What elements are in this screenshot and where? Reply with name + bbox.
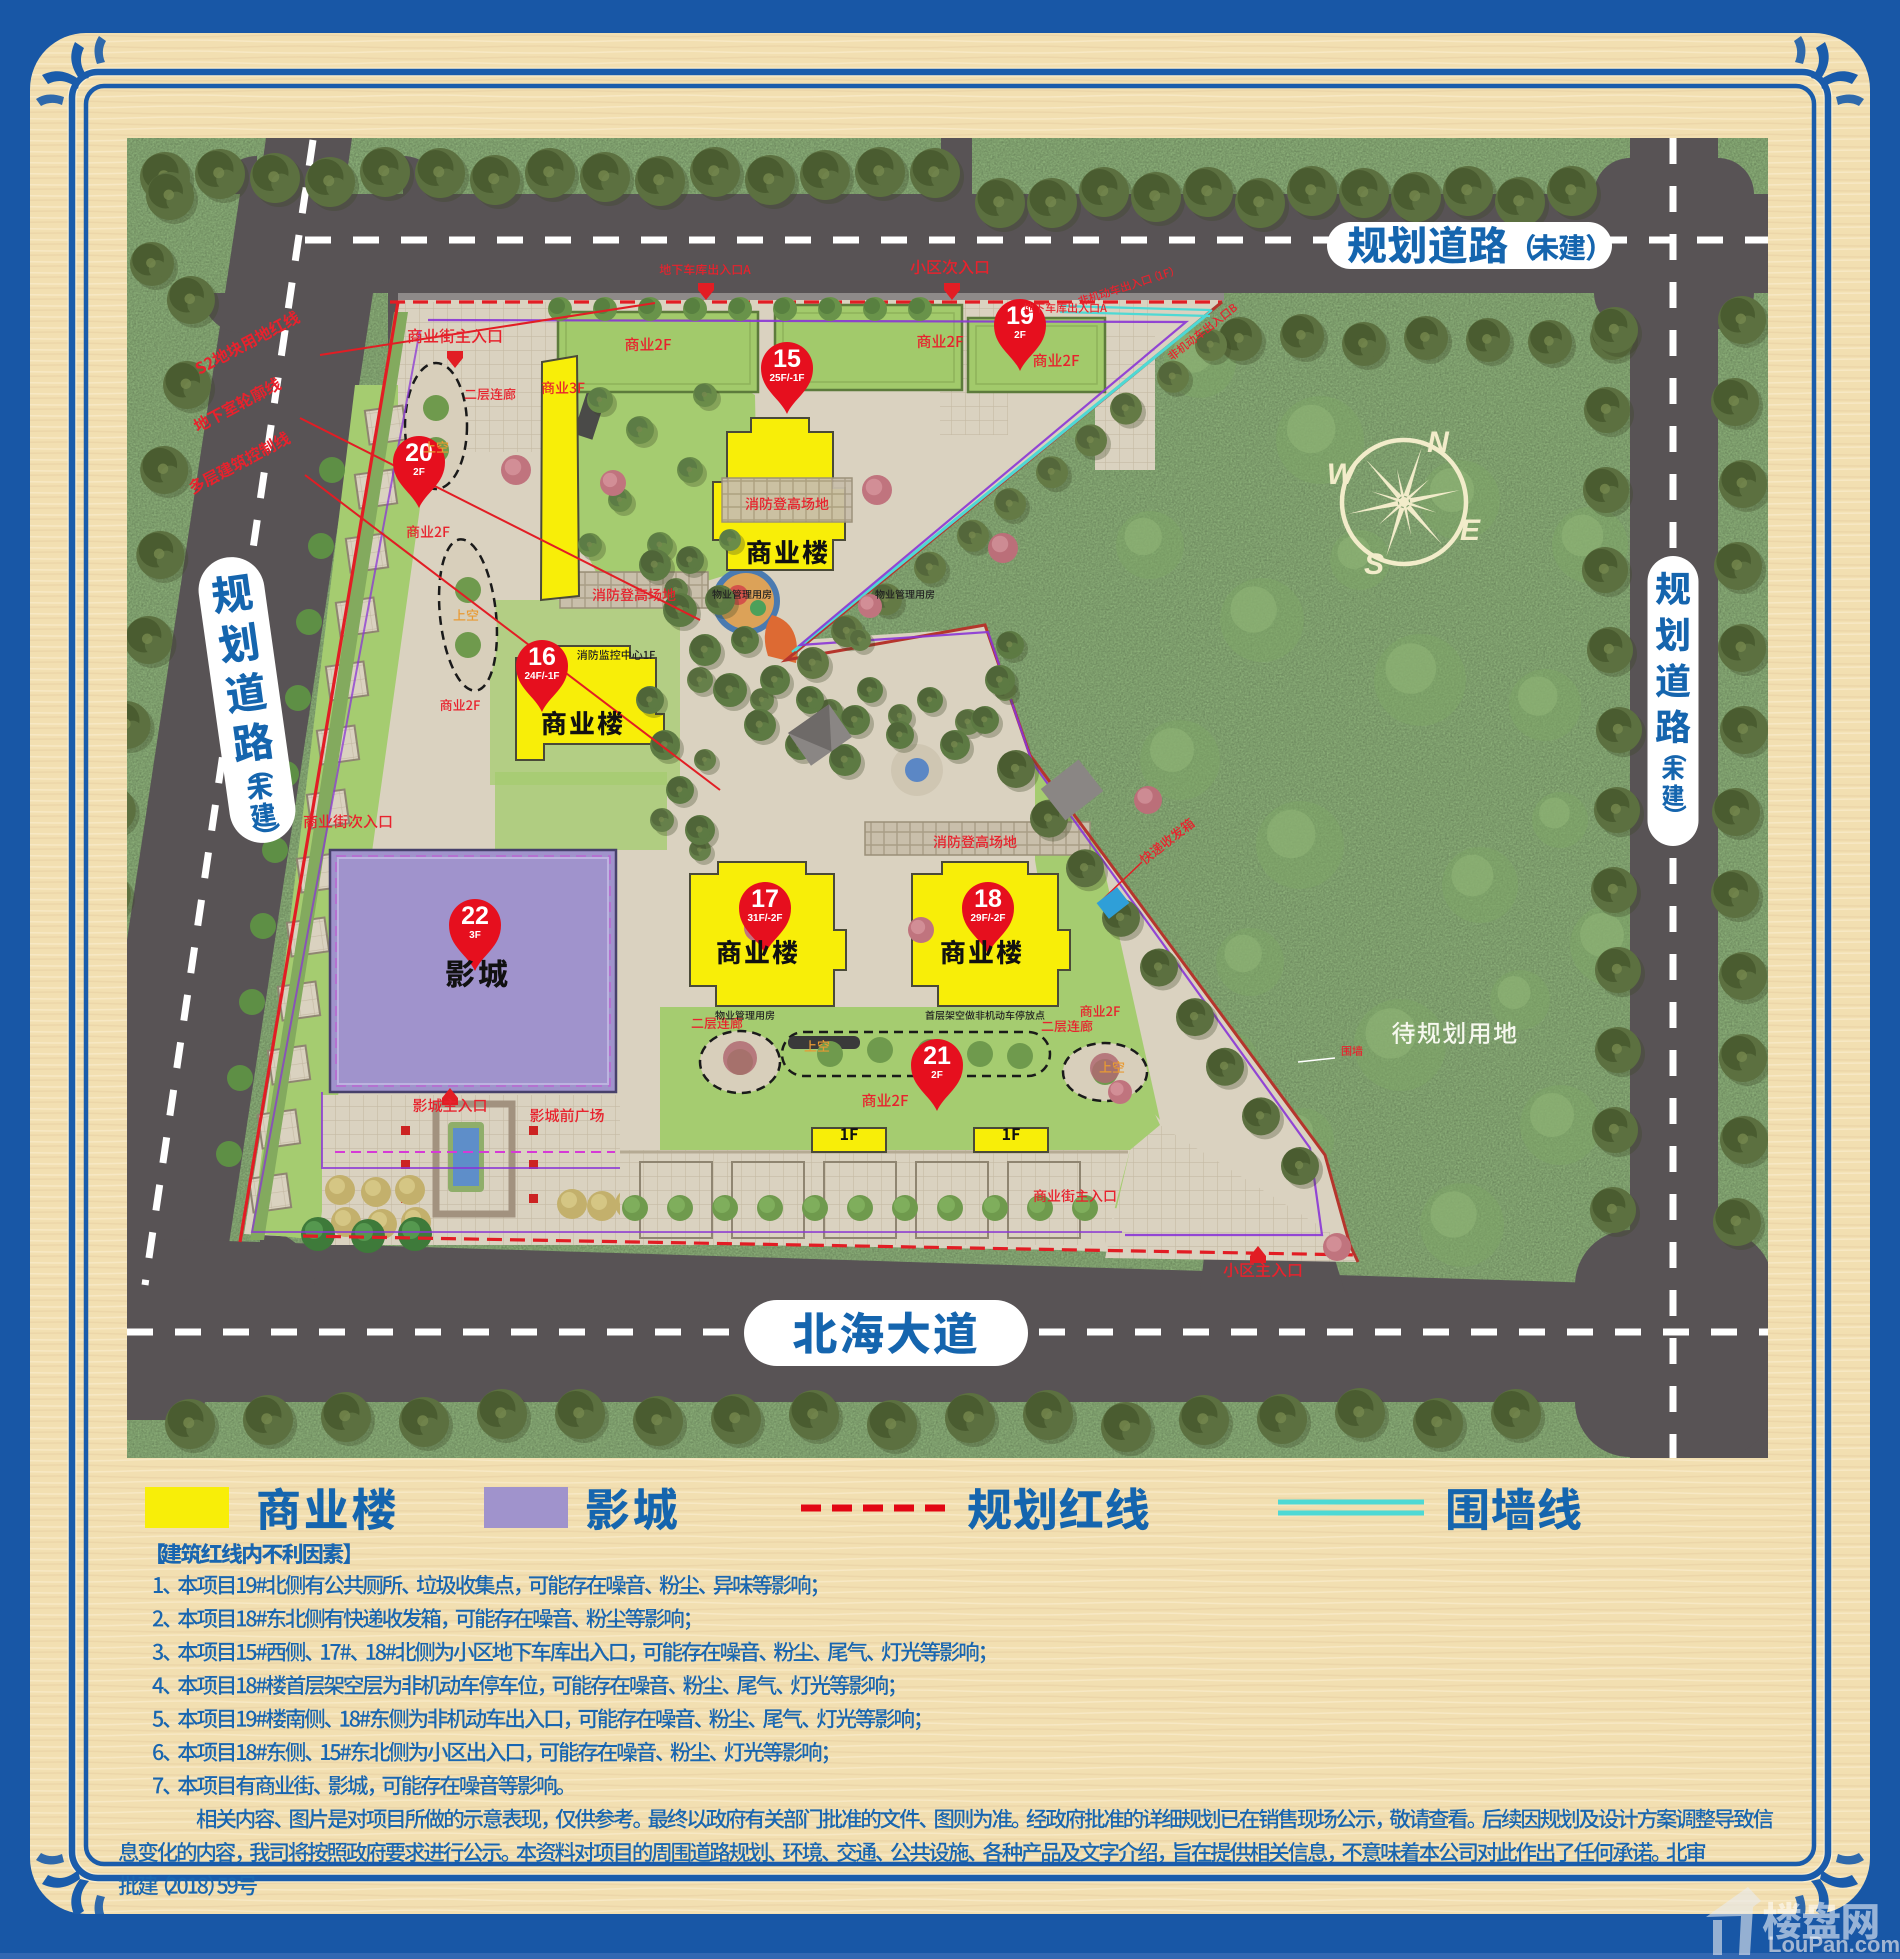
- svg-text:17: 17: [751, 885, 779, 913]
- svg-text:15: 15: [773, 345, 801, 373]
- svg-text:29F/-2F: 29F/-2F: [970, 913, 1005, 924]
- svg-text:2F: 2F: [931, 1070, 943, 1081]
- svg-text:N: N: [1427, 426, 1450, 459]
- svg-text:3F: 3F: [469, 930, 481, 941]
- svg-text:24F/-1F: 24F/-1F: [524, 671, 559, 682]
- svg-text:S: S: [1364, 548, 1384, 581]
- svg-text:21: 21: [923, 1042, 951, 1070]
- svg-text:2F: 2F: [413, 467, 425, 478]
- svg-text:2F: 2F: [1014, 330, 1026, 341]
- svg-text:31F/-2F: 31F/-2F: [747, 913, 782, 924]
- svg-text:18: 18: [974, 885, 1002, 913]
- svg-text:E: E: [1460, 514, 1481, 547]
- svg-text:22: 22: [461, 902, 489, 930]
- svg-text:W: W: [1327, 458, 1358, 491]
- svg-text:25F/-1F: 25F/-1F: [769, 373, 804, 384]
- svg-text:16: 16: [528, 643, 556, 671]
